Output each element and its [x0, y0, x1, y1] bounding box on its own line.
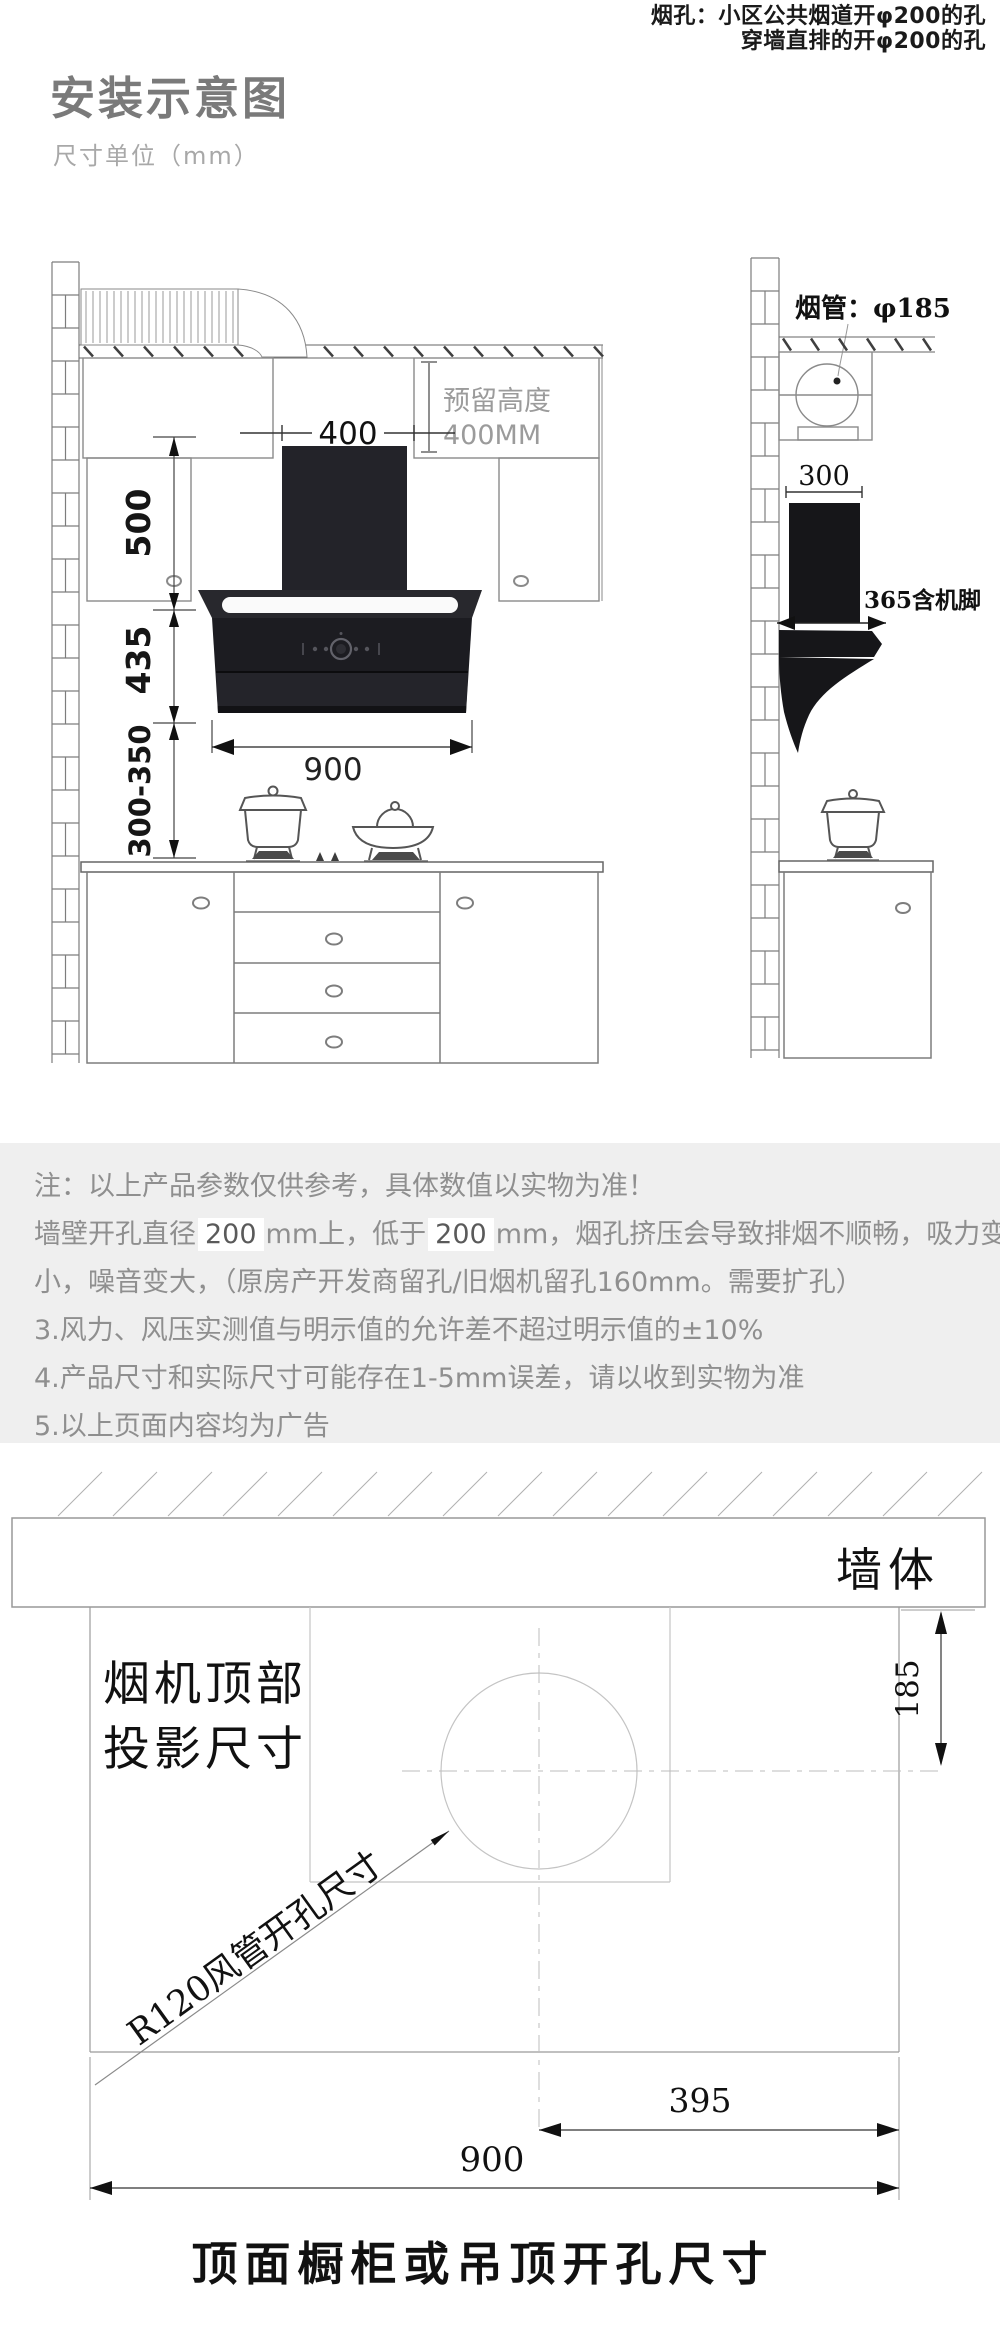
hood-width-dimension [212, 720, 472, 753]
hood-light-strip [222, 597, 458, 613]
disclaimer-notes: 注：以上产品参数仅供参考，具体数值以实物为准！ 墙壁开孔直径200mm上，低于2… [0, 1143, 1000, 1443]
front-view-diagram: 预留高度 400MM 400 900 [40, 250, 620, 1080]
dim-395: 395 [669, 2081, 732, 2120]
reserved-height-value: 400MM [443, 420, 541, 451]
wall-label: 墙体 [836, 1543, 940, 1597]
unit-note: 尺寸单位（mm） [53, 136, 260, 171]
note2-hole-size-2: 200 [428, 1218, 494, 1251]
dim-185: 185 [890, 1659, 926, 1718]
dim-300: 300 [798, 461, 850, 492]
brick-wall-left [52, 262, 79, 1063]
top-projection-diagram: 墙体 烟机顶部 投影尺寸 185 R120风管开孔尺寸 395 [0, 1455, 1000, 2215]
dim-500: 500 [119, 489, 158, 558]
note2-tail: mm，烟孔挤压会导致排烟不顺畅，吸力变 [496, 1219, 1000, 1250]
leader-label: R120风管开孔尺寸 [121, 1844, 391, 2053]
projection-caption: 顶面橱柜或吊顶开孔尺寸 [0, 2228, 966, 2294]
note2-mid: mm上，低于 [266, 1219, 427, 1250]
dim-365: 365含机脚 [864, 587, 981, 614]
hood-chimney [282, 446, 407, 590]
centerlines [402, 1628, 941, 2132]
dim-300-350: 300-350 [123, 724, 157, 857]
duct-cabinet-side [779, 352, 872, 440]
side-view-diagram: 烟管：φ185 300 365含机脚 [720, 250, 1000, 1080]
page-title: 安装示意图 [50, 62, 290, 127]
note-line-5: 4.产品尺寸和实际尺寸可能存在1-5mm误差，请以收到实物为准 [34, 1355, 980, 1403]
ceiling-hatch-side [783, 339, 931, 351]
note-line-1: 注：以上产品参数仅供参考，具体数值以实物为准！ [34, 1163, 980, 1211]
height-dimension-chain [153, 437, 196, 858]
dim-900: 900 [303, 752, 362, 788]
range-hood-front [198, 446, 482, 713]
dim-900-arrow-right [450, 739, 472, 755]
base-cabinet-side [779, 861, 933, 1058]
hood-panel-side [779, 657, 874, 753]
duct-opening-square [310, 1607, 670, 1882]
vent-note-line2: 穿墙直排的开φ200的孔 [651, 29, 986, 54]
note-line-6: 5.以上页面内容均为广告 [34, 1403, 980, 1451]
note2-pre: 墙壁开孔直径 [34, 1219, 196, 1250]
dim-900-projection: 900 [460, 2140, 525, 2180]
note2-hole-size-1: 200 [198, 1218, 264, 1251]
vent-hole-note: 烟孔：小区公共烟道开φ200的孔 穿墙直排的开φ200的孔 [651, 4, 986, 54]
dim-435: 435 [119, 626, 158, 695]
projection-title-line1: 烟机顶部 [103, 1657, 307, 1712]
projection-title-line2: 投影尺寸 [103, 1722, 307, 1777]
brick-wall-side [751, 258, 779, 1058]
note-line-4: 3.风力、风压实测值与明示值的允许差不超过明示值的±10% [34, 1307, 980, 1355]
vent-note-line1: 烟孔：小区公共烟道开φ200的孔 [651, 4, 986, 29]
ceiling-side [779, 337, 935, 352]
dim-900-arrow-left [212, 739, 234, 755]
hood-bottom-band [218, 706, 466, 713]
reserved-height-label: 预留高度 [443, 386, 551, 417]
pipe-leader [834, 324, 849, 385]
note-line-3: 小，噪音变大，（原房产开发商留孔/旧烟机留孔160mm。需要扩孔） [34, 1259, 980, 1307]
stove-pots-front [240, 787, 433, 862]
hood-canopy-side [779, 630, 882, 657]
base-cabinet-front [81, 862, 603, 1063]
stove-pot-side [822, 790, 884, 860]
ceiling-hatch [84, 347, 603, 357]
hood-chimney-side [789, 503, 860, 623]
reserved-height-dimension [421, 362, 437, 452]
wall-hatch [58, 1472, 982, 1516]
note-line-2: 墙壁开孔直径200mm上，低于200mm，烟孔挤压会导致排烟不顺畅，吸力变 [34, 1211, 980, 1259]
pipe-label: 烟管：φ185 [795, 294, 951, 324]
